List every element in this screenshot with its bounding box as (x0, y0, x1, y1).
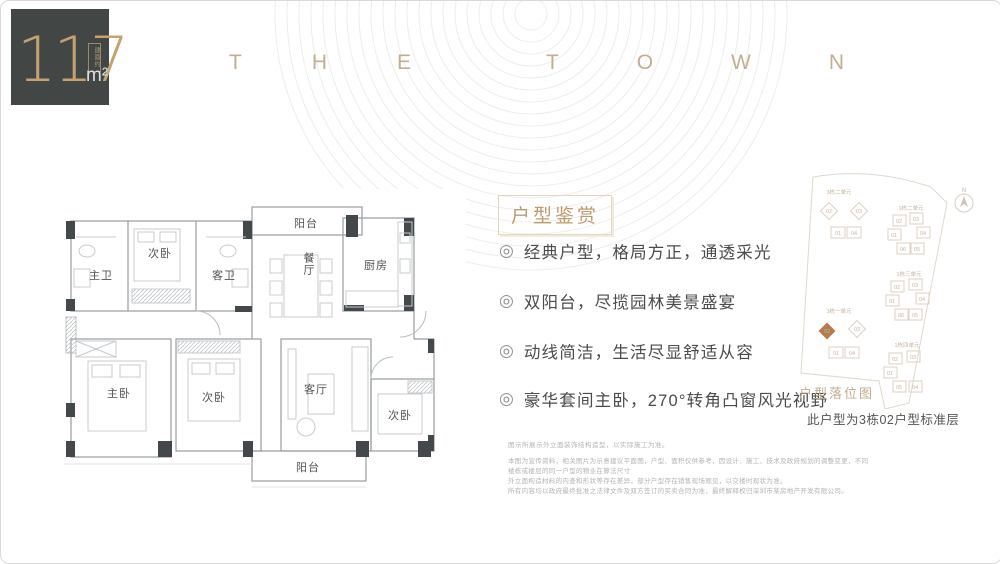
svg-text:03: 03 (856, 209, 862, 215)
building-cluster-3-highlighted: 3栋一单元 02 03 01 04 (819, 307, 866, 358)
feature-bullet-2: ◎ 双阳台，尽揽园林美景盛宴 (499, 289, 736, 313)
bullet-icon: ◎ (499, 341, 514, 361)
bullet-icon: ◎ (499, 241, 514, 261)
room-label-living: 客厅 (304, 382, 328, 396)
area-unit: m² (86, 65, 108, 87)
svg-text:03: 03 (910, 355, 916, 361)
room-label-bedroom-mid: 次卧 (202, 390, 226, 404)
building-cluster-4: 1栋三单元 02 03 01 04 06 05 (886, 270, 929, 320)
svg-text:04: 04 (919, 297, 925, 303)
brand-letter: N (829, 51, 844, 75)
brand-letter: H (312, 51, 327, 75)
svg-text:03: 03 (913, 217, 919, 223)
svg-text:01: 01 (887, 371, 893, 377)
brand-letter: T (546, 51, 559, 75)
svg-text:3栋二单元: 3栋二单元 (826, 188, 852, 196)
room-label-balcony-top: 阳台 (294, 216, 318, 230)
bullet-icon: ◎ (499, 291, 514, 311)
svg-text:04: 04 (849, 351, 855, 357)
svg-text:04: 04 (920, 231, 926, 237)
brand-letter: T (229, 51, 242, 75)
section-title-huxing-jianshang: 户型鉴赏 (498, 195, 612, 235)
disclaimer-text: 所有内容均以政府最终批准之法律文件及双方签订的买卖合同为准，最终解释权归深圳市某… (508, 487, 873, 497)
svg-text:03: 03 (912, 283, 918, 289)
area-value: 117 (17, 17, 126, 103)
feature-text: 动线简洁，生活尽显舒适从容 (524, 339, 754, 363)
svg-text:06: 06 (900, 247, 906, 253)
brand-word-the: T H E (229, 51, 411, 75)
svg-text:01: 01 (833, 351, 839, 357)
brand-letter: E (397, 51, 411, 75)
svg-text:05: 05 (896, 385, 902, 391)
feature-bullet-3: ◎ 动线简洁，生活尽显舒适从容 (499, 339, 754, 363)
svg-text:3栋一单元: 3栋一单元 (826, 307, 852, 315)
feature-bullet-1: ◎ 经典户型，格局方正，通透采光 (499, 239, 772, 263)
room-label-dining: 餐厅 (302, 251, 315, 276)
svg-text:1栋二单元: 1栋二单元 (898, 204, 924, 212)
svg-text:01: 01 (835, 231, 841, 237)
sitemap-caption: 户型落位图 (799, 383, 874, 402)
room-label-bedroom-right: 次卧 (388, 408, 412, 422)
brand-letter: W (731, 51, 751, 75)
svg-text:05: 05 (914, 247, 920, 253)
poster-canvas: 117 建面约 m² T H E T O W N (0, 0, 1000, 564)
svg-text:1栋三单元: 1栋三单元 (896, 270, 922, 278)
svg-text:02: 02 (824, 329, 830, 335)
svg-text:05: 05 (912, 313, 918, 319)
room-label-master-bedroom: 主卧 (107, 387, 131, 400)
feature-text: 经典户型，格局方正，通透采光 (524, 239, 772, 263)
room-label-guest-bath: 客卫 (212, 268, 236, 282)
brand-word-town: T O W N (546, 51, 844, 75)
disclaimer-text: 本图为宣传资料，相关图片为示意建议平面图，户型、面积仅供参考，因设计、施工、技术… (508, 457, 873, 477)
sitemap-note: 此户型为3栋02户型标准层 (807, 409, 959, 428)
bullet-icon: ◎ (499, 389, 514, 409)
svg-text:02: 02 (826, 209, 832, 215)
svg-text:1栋四单元: 1栋四单元 (894, 341, 920, 349)
svg-text:02: 02 (894, 285, 900, 291)
svg-text:04: 04 (851, 231, 857, 237)
room-label-balcony-bottom: 阳台 (296, 460, 320, 474)
area-badge: 117 建面约 m² (11, 9, 109, 105)
compass-icon: N (955, 188, 973, 212)
floor-plan: 阳台 次卧 主卫 客卫 餐厅 厨房 主卧 次卧 客厅 次卧 阳台 (56, 189, 466, 494)
room-label-master-bath: 主卫 (89, 269, 113, 282)
svg-text:03: 03 (854, 327, 860, 333)
svg-text:N: N (962, 188, 966, 194)
feature-text: 双阳台，尽揽园林美景盛宴 (524, 289, 736, 313)
disclaimer-line: 图示所展示外立面装饰结构造型，以实际施工为准。 (508, 439, 669, 449)
svg-text:04: 04 (912, 385, 918, 391)
svg-text:01: 01 (891, 233, 897, 239)
feature-bullet-4: ◎ 豪华套间主卧，270°转角凸窗风光视野 (499, 387, 828, 411)
room-label-bedroom-top: 次卧 (148, 246, 172, 260)
building-cluster-1: 3栋二单元 02 03 01 04 (821, 188, 868, 238)
svg-text:06: 06 (898, 313, 904, 319)
building-cluster-2: 1栋二单元 02 03 01 04 06 05 (888, 204, 930, 254)
svg-text:02: 02 (892, 357, 898, 363)
disclaimer-paragraph: 本图为宣传资料，相关图片为示意建议平面图，户型、面积仅供参考，因设计、施工、技术… (508, 457, 873, 497)
disclaimer-text: 外立面构造材料的内查和形状等存在差异，部分户型存在销售现场观见，以交楼时现状为准… (508, 477, 873, 487)
brand-letter: O (637, 51, 653, 75)
room-label-kitchen: 厨房 (364, 259, 388, 272)
svg-text:01: 01 (889, 299, 895, 305)
plan-shaft-hatch (66, 317, 76, 353)
svg-text:02: 02 (896, 219, 902, 225)
